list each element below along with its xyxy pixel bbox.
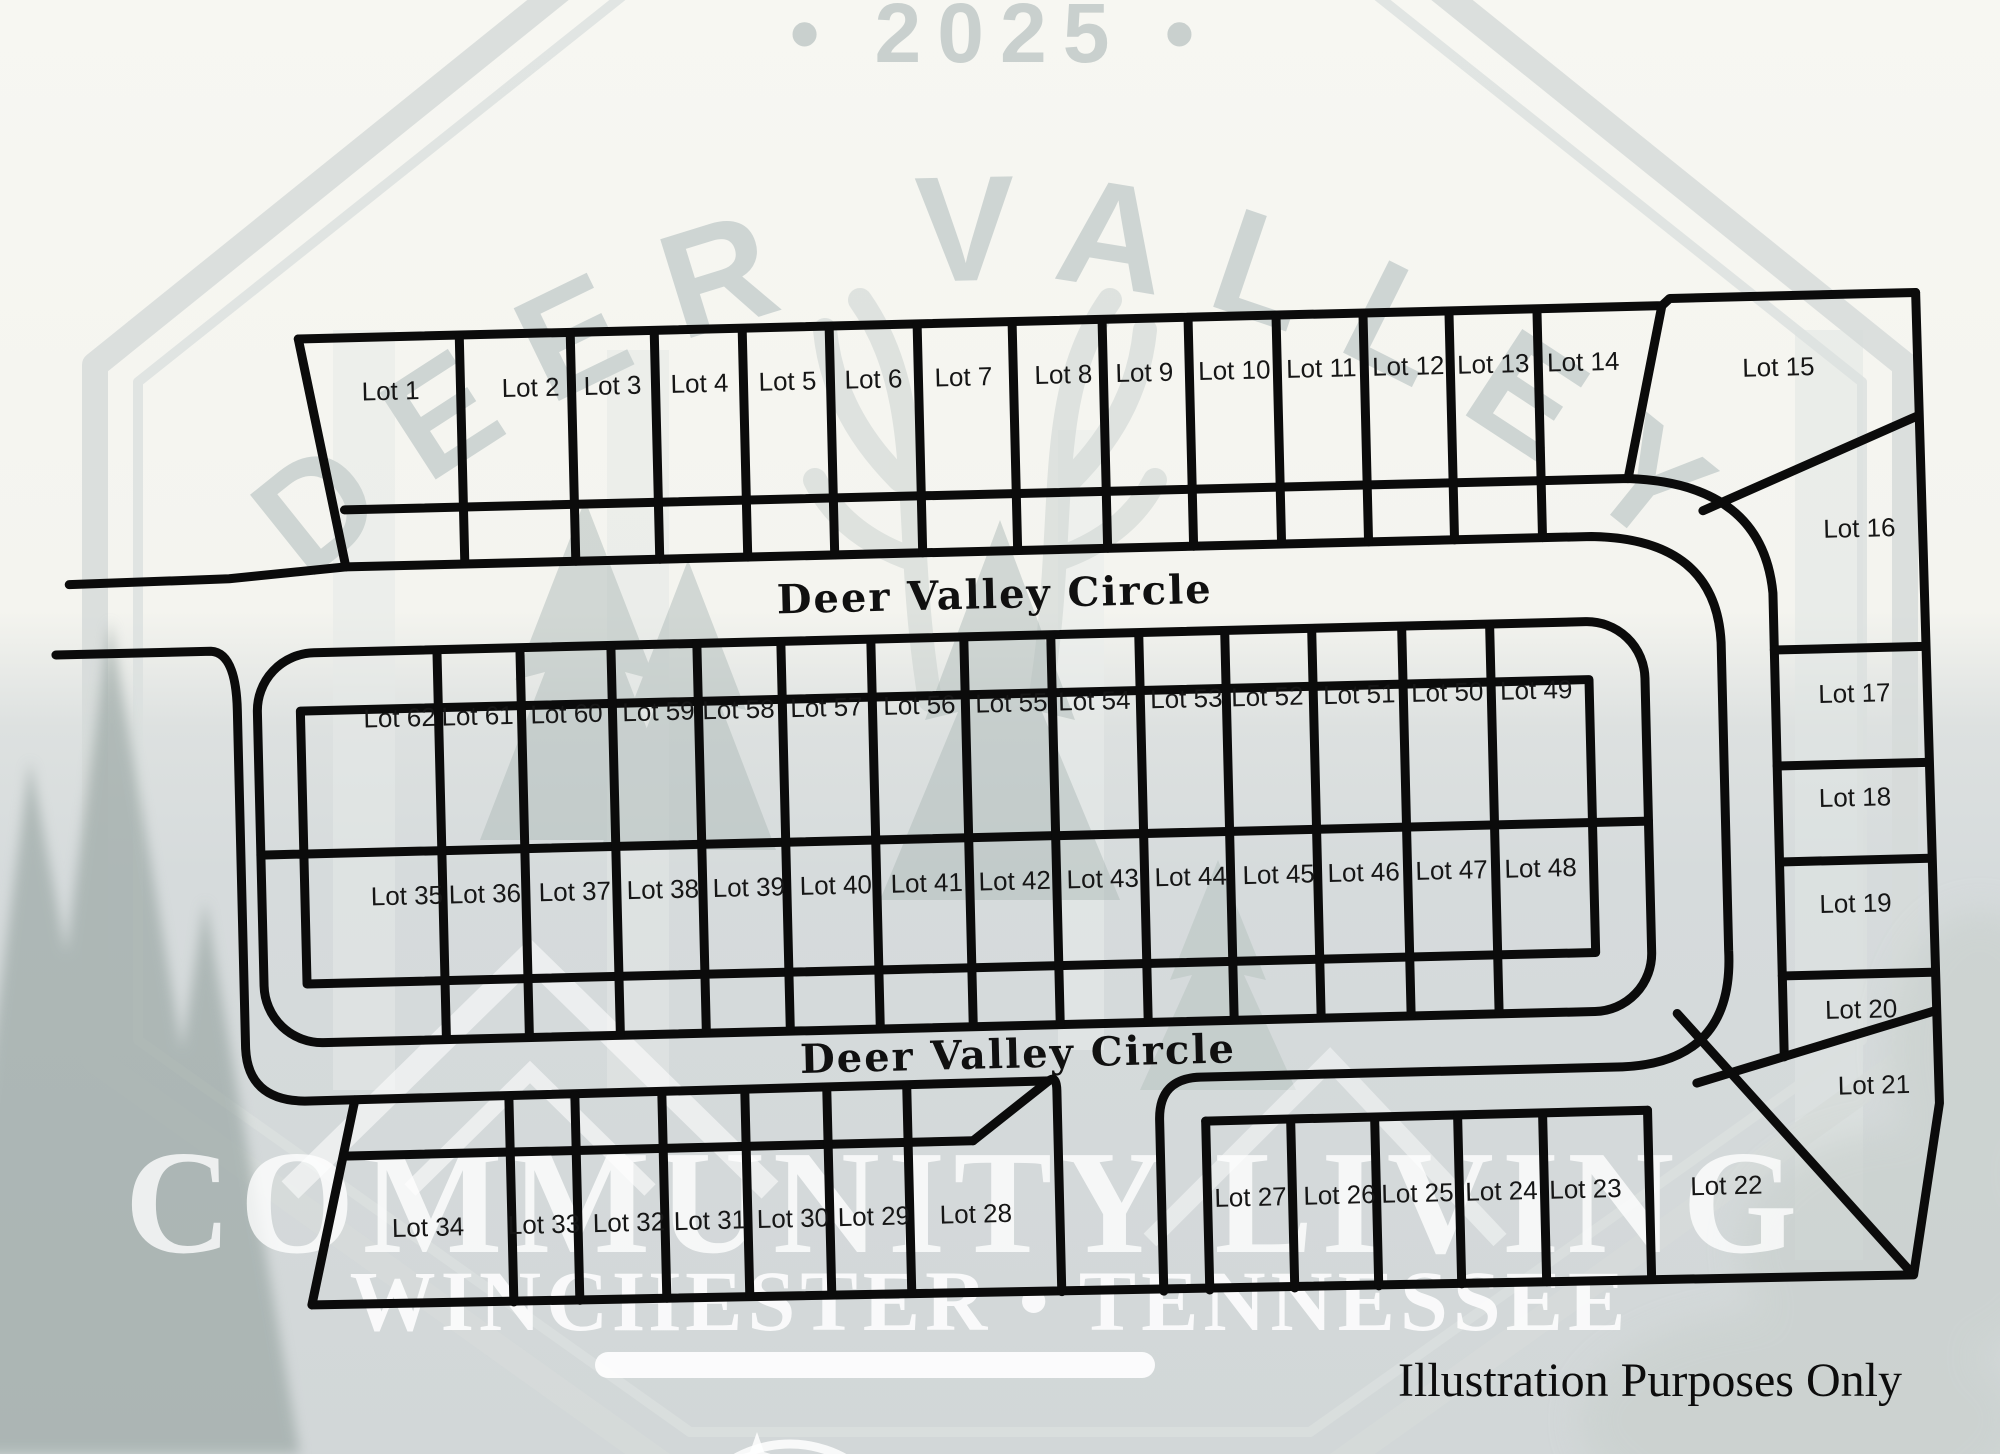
lot-label-lot-11: Lot 11 bbox=[1286, 352, 1357, 384]
lot-label-lot-36: Lot 36 bbox=[448, 878, 521, 910]
lot-label-lot-8: Lot 8 bbox=[1034, 359, 1093, 390]
lot-label-lot-49: Lot 49 bbox=[1500, 674, 1573, 706]
lot27-west-edge bbox=[1206, 1121, 1210, 1290]
lot-label-lot-58: Lot 58 bbox=[702, 693, 775, 725]
lot-label-lot-3: Lot 3 bbox=[583, 370, 642, 401]
lot-label-lot-22: Lot 22 bbox=[1690, 1169, 1763, 1201]
lot-label-lot-31: Lot 31 bbox=[673, 1204, 746, 1236]
lot-label-lot-9: Lot 9 bbox=[1115, 357, 1174, 388]
lot-label-lot-60: Lot 60 bbox=[530, 698, 603, 730]
lot-label-lot-37: Lot 37 bbox=[538, 876, 611, 908]
lot-label-lot-29: Lot 29 bbox=[837, 1200, 910, 1232]
lot-label-lot-1: Lot 1 bbox=[361, 375, 420, 406]
lot-label-lot-43: Lot 43 bbox=[1066, 863, 1139, 895]
lot23-east-edge bbox=[1648, 1110, 1652, 1279]
lot-label-lot-40: Lot 40 bbox=[799, 869, 872, 901]
lot-label-lot-32: Lot 32 bbox=[592, 1206, 665, 1238]
lot-label-lot-25: Lot 25 bbox=[1381, 1177, 1454, 1209]
lot-label-lot-2: Lot 2 bbox=[501, 372, 560, 403]
lot-label-lot-23: Lot 23 bbox=[1549, 1173, 1622, 1205]
lot-label-lot-14: Lot 14 bbox=[1547, 346, 1620, 378]
lot-label-lot-12: Lot 12 bbox=[1372, 350, 1445, 382]
lot-label-lot-7: Lot 7 bbox=[934, 361, 993, 392]
lot-label-lot-26: Lot 26 bbox=[1303, 1179, 1376, 1211]
lot-label-lot-39: Lot 39 bbox=[712, 871, 785, 903]
lot-label-lot-50: Lot 50 bbox=[1411, 676, 1484, 708]
lot-label-lot-41: Lot 41 bbox=[890, 867, 963, 899]
lot-label-lot-18: Lot 18 bbox=[1818, 781, 1891, 813]
lot-label-lot-13: Lot 13 bbox=[1457, 348, 1530, 380]
lot-label-lot-52: Lot 52 bbox=[1231, 681, 1304, 713]
lot-label-lot-62: Lot 62 bbox=[363, 702, 436, 734]
lot-label-lot-4: Lot 4 bbox=[670, 368, 729, 399]
lot-label-lot-33: Lot 33 bbox=[507, 1208, 580, 1240]
lot-label-lot-61: Lot 61 bbox=[441, 700, 514, 732]
lot-label-lot-57: Lot 57 bbox=[790, 691, 863, 723]
lot-label-lot-42: Lot 42 bbox=[978, 865, 1051, 897]
lot-label-lot-51: Lot 51 bbox=[1323, 678, 1396, 710]
lot-label-lot-35: Lot 35 bbox=[370, 880, 443, 912]
lot-label-lot-46: Lot 46 bbox=[1327, 856, 1400, 888]
lot-label-lot-15: Lot 15 bbox=[1742, 351, 1815, 383]
lot-label-lot-47: Lot 47 bbox=[1415, 854, 1488, 886]
lot-label-lot-53: Lot 53 bbox=[1150, 683, 1223, 715]
lot-label-lot-56: Lot 56 bbox=[883, 689, 956, 721]
lot-label-lot-34: Lot 34 bbox=[392, 1211, 465, 1243]
lot-label-lot-10: Lot 10 bbox=[1198, 354, 1271, 386]
lot-label-lot-54: Lot 54 bbox=[1058, 685, 1131, 717]
lot-label-lot-6: Lot 6 bbox=[844, 363, 903, 394]
lot-label-lot-30: Lot 30 bbox=[756, 1202, 829, 1234]
lot-label-lot-17: Lot 17 bbox=[1818, 677, 1891, 709]
lot-label-lot-16: Lot 16 bbox=[1823, 512, 1896, 544]
lot-label-lot-55: Lot 55 bbox=[975, 687, 1048, 719]
lot-label-lot-44: Lot 44 bbox=[1154, 860, 1227, 892]
lot-label-lot-48: Lot 48 bbox=[1504, 852, 1577, 884]
badge-bar bbox=[595, 1352, 1155, 1378]
lot-label-lot-20: Lot 20 bbox=[1825, 993, 1898, 1025]
lot-label-lot-28: Lot 28 bbox=[939, 1198, 1012, 1230]
lot-label-lot-24: Lot 24 bbox=[1465, 1175, 1538, 1207]
lot-label-lot-27: Lot 27 bbox=[1214, 1181, 1287, 1213]
notice-text: Illustration Purposes Only bbox=[1398, 1354, 1902, 1407]
lot-label-lot-45: Lot 45 bbox=[1242, 858, 1315, 890]
plat-map-canvas: • 2025 • DEER VALLEY bbox=[0, 0, 2000, 1454]
lot-label-lot-38: Lot 38 bbox=[626, 873, 699, 905]
lot-label-lot-59: Lot 59 bbox=[622, 695, 695, 727]
lot-label-lot-19: Lot 19 bbox=[1819, 887, 1892, 919]
lot-label-lot-5: Lot 5 bbox=[758, 365, 817, 396]
lot-label-lot-21: Lot 21 bbox=[1837, 1069, 1910, 1101]
watermark-year: • 2025 • bbox=[790, 0, 1210, 80]
